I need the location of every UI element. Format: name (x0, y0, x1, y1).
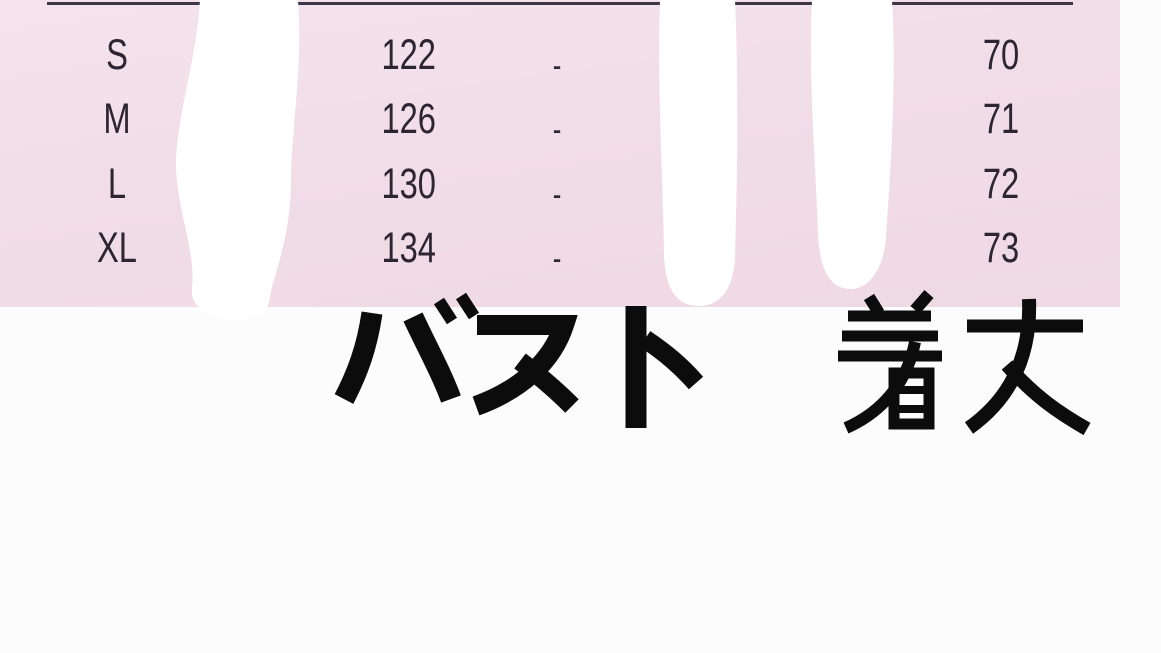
bust-label-glyphs (344, 296, 696, 428)
size-caption: バスト 着丈 (330, 285, 1100, 445)
white-paint-stroke (811, 0, 894, 289)
white-paint-stroke (659, 0, 737, 306)
length-label-glyphs (838, 294, 1087, 429)
size-chart-image: S 122 - 70 M 126 - 71 L 130 - 72 XL 134 … (0, 0, 1161, 653)
white-paint-stroke (176, 0, 299, 320)
